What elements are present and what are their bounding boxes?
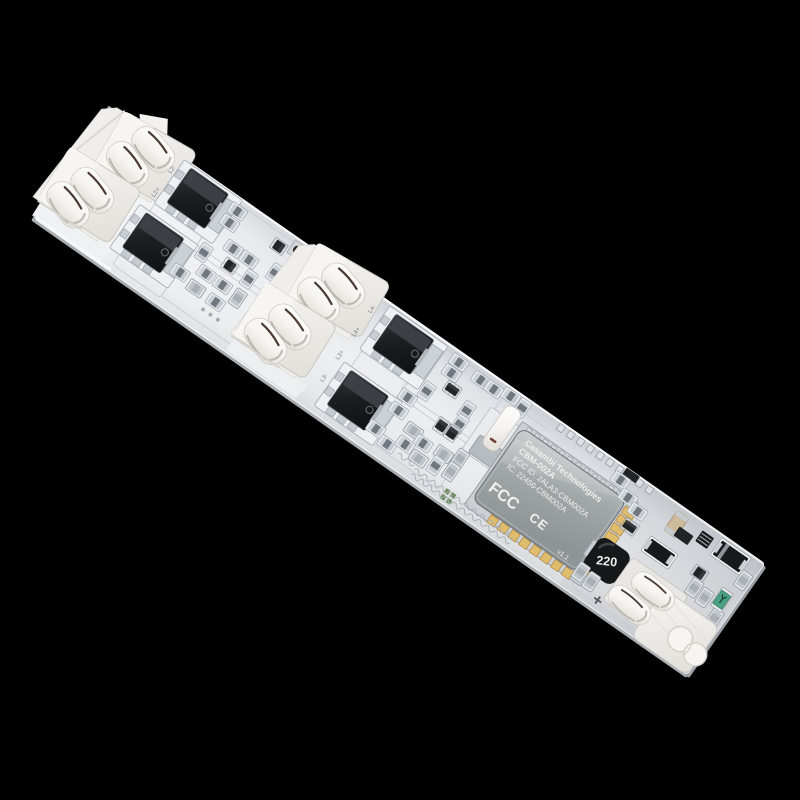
svg-text:220: 220 — [596, 553, 618, 569]
